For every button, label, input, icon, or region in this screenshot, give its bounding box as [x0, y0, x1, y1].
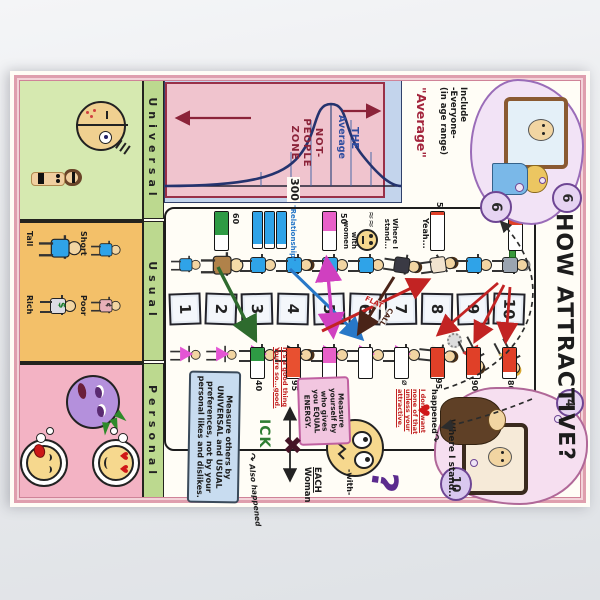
- hand-drawn-poster: HOW ATTRACTIVE? 6 6 Include -Everyone- (…: [10, 71, 590, 507]
- ick-label: ICK: [255, 419, 272, 448]
- poster-photo: HOW ATTRACTIVE? 6 6 Include -Everyone- (…: [0, 0, 600, 600]
- rich-man-figure: $: [38, 293, 76, 317]
- where-i-stand-label: Where I stand..: [445, 419, 456, 497]
- heart-icon: ♥: [413, 403, 432, 417]
- thought-dot: [118, 433, 128, 443]
- also-happened-label: ↷ Also happened: [244, 453, 263, 527]
- each-woman-label: EACH Woman: [302, 467, 322, 503]
- thought-bubble-six: 6: [480, 191, 512, 223]
- section-label-personal: Personal: [142, 363, 164, 501]
- heart-eye: ♥: [116, 464, 129, 474]
- kiss-emoji: [26, 445, 62, 481]
- section-label-usual: Usual: [142, 221, 164, 361]
- x-mark-icon: ✖: [278, 435, 306, 455]
- bubble-dot: [515, 183, 524, 192]
- thought-dot: [46, 427, 54, 435]
- average-label: Average: [336, 115, 347, 159]
- poor-man-figure: ¢: [89, 295, 120, 315]
- poor-label: Poor: [79, 295, 88, 316]
- screen-face: [488, 447, 512, 467]
- curl-arrow-icon: ↷: [245, 453, 257, 462]
- universal-panel: Symmetry hair Skin (youth, health) 7/10 …: [16, 79, 144, 221]
- heart-eye: ♥: [116, 451, 129, 461]
- bubble-dot: [470, 459, 478, 467]
- heart-eyes-emoji: ♥ ♥: [98, 445, 134, 481]
- with-label: -with-: [345, 469, 354, 495]
- distribution-panel: [164, 79, 402, 203]
- tall-label: Tall: [25, 231, 34, 246]
- woman-at-phone: [488, 409, 506, 431]
- not-people-zone-label: NOT- PEOPLE ZONE: [289, 111, 324, 175]
- bubble-dot: [539, 177, 546, 184]
- tall-man-figure: [37, 233, 82, 261]
- thought-dot: [110, 427, 118, 435]
- curl-arrow-icon: ↷: [429, 434, 440, 442]
- average-quote-label: "Average": [413, 87, 428, 158]
- purple-monster-face: [66, 375, 120, 429]
- short-man-figure: [89, 239, 120, 259]
- page-title: HOW ATTRACTIVE?: [549, 189, 578, 485]
- the-average-label: THE: [348, 127, 360, 149]
- bikini-woman: [22, 165, 82, 191]
- section-label-universal: Universal: [142, 79, 164, 219]
- cent-icon: ¢: [104, 303, 113, 308]
- count-label: 300: [287, 177, 300, 202]
- mirror-reflection-face: [528, 119, 554, 141]
- symmetry-face: [76, 101, 126, 151]
- rich-label: Rich: [25, 295, 34, 314]
- wall-mirror-icon: [504, 97, 568, 169]
- measure-others-note: Measure others by UNIVERSAL and USUAL pr…: [187, 371, 241, 504]
- bell-curve: [165, 80, 401, 202]
- question-mark: ?: [360, 468, 405, 495]
- personal-panel: ♥ ♥: [16, 363, 144, 503]
- dollar-icon: $: [55, 302, 66, 308]
- thought-dot: [36, 433, 46, 443]
- include-note: Include -Everyone- (in age range): [438, 87, 468, 191]
